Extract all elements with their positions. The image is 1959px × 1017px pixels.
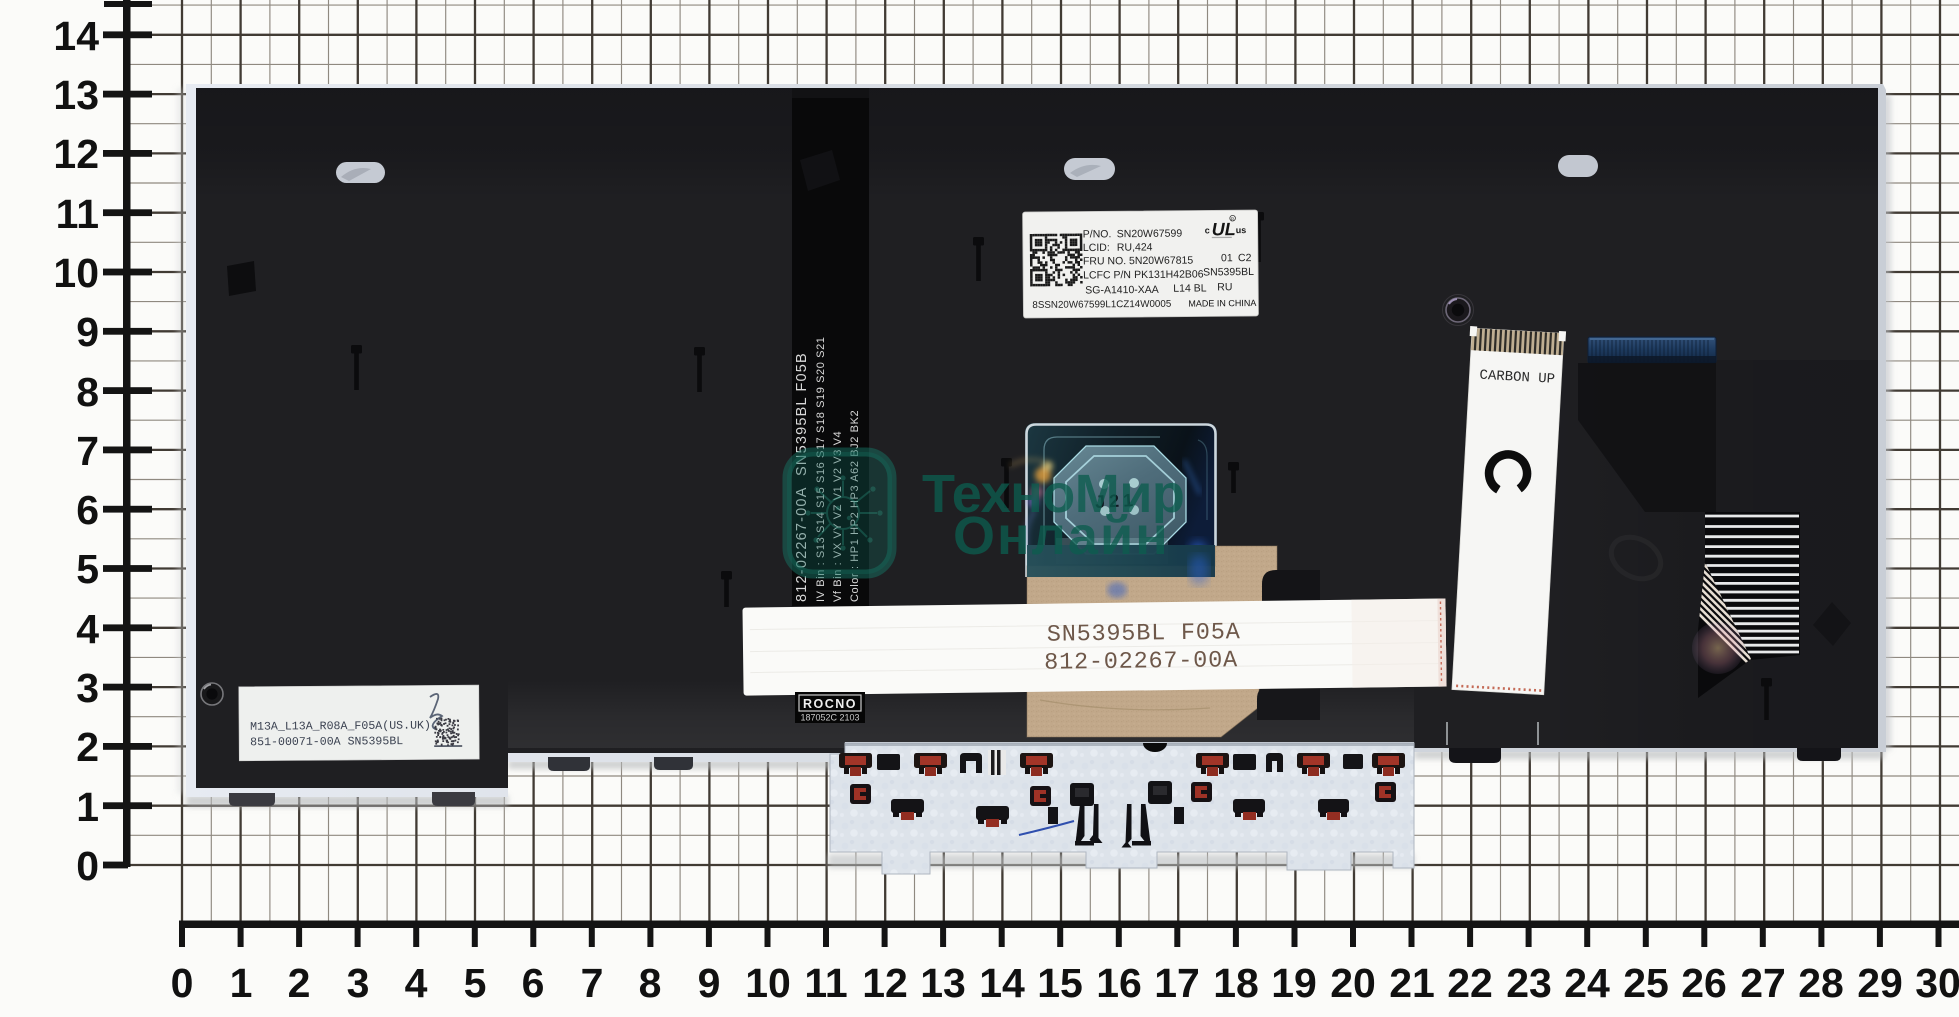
svg-text:23: 23 xyxy=(1506,960,1552,1006)
svg-text:20: 20 xyxy=(1330,960,1376,1006)
svg-text:6: 6 xyxy=(76,487,99,533)
svg-text:01: 01 xyxy=(1221,252,1233,264)
svg-text:FRU NO.: FRU NO. xyxy=(1083,255,1126,267)
svg-text:M13A_L13A_R08A_F05A(US.UK): M13A_L13A_R08A_F05A(US.UK) xyxy=(250,719,431,733)
svg-text:5: 5 xyxy=(464,960,487,1006)
svg-text:5N20W67815: 5N20W67815 xyxy=(1129,255,1193,268)
svg-text:c: c xyxy=(1205,225,1210,235)
svg-text:MADE IN CHINA: MADE IN CHINA xyxy=(1188,298,1256,309)
svg-text:3: 3 xyxy=(347,960,370,1006)
svg-text:8: 8 xyxy=(639,960,662,1006)
svg-text:4: 4 xyxy=(76,606,99,652)
svg-text:0: 0 xyxy=(171,960,194,1006)
svg-text:10: 10 xyxy=(745,960,791,1006)
svg-text:2: 2 xyxy=(76,724,99,770)
svg-text:L14 BL: L14 BL xyxy=(1173,282,1207,294)
svg-text:3: 3 xyxy=(76,665,99,711)
svg-text:10: 10 xyxy=(53,250,99,296)
svg-text:7: 7 xyxy=(581,960,604,1006)
svg-text:28: 28 xyxy=(1798,960,1844,1006)
svg-text:16: 16 xyxy=(1096,960,1142,1006)
svg-text:24: 24 xyxy=(1564,960,1610,1006)
svg-text:9: 9 xyxy=(76,309,99,355)
svg-text:30: 30 xyxy=(1915,960,1959,1006)
svg-text:11: 11 xyxy=(804,960,847,1006)
svg-text:ROCNO: ROCNO xyxy=(803,697,857,711)
svg-text:0: 0 xyxy=(76,843,99,889)
svg-text:9: 9 xyxy=(698,960,721,1006)
svg-text:21: 21 xyxy=(1389,960,1435,1006)
svg-text:6: 6 xyxy=(522,960,545,1006)
svg-text:12: 12 xyxy=(53,131,99,177)
svg-text:8: 8 xyxy=(76,369,99,415)
svg-text:27: 27 xyxy=(1740,960,1786,1006)
svg-text:PK131H42B06: PK131H42B06 xyxy=(1134,268,1204,281)
svg-text:SN5395BL F05A: SN5395BL F05A xyxy=(1047,619,1241,649)
svg-text:SN20W67599: SN20W67599 xyxy=(1117,228,1183,241)
svg-text:1: 1 xyxy=(76,784,99,830)
svg-text:11: 11 xyxy=(56,191,99,237)
svg-text:2: 2 xyxy=(288,960,311,1006)
svg-text:C2: C2 xyxy=(1238,252,1252,264)
svg-text:29: 29 xyxy=(1857,960,1903,1006)
svg-text:812-02267-00A: 812-02267-00A xyxy=(1044,647,1238,677)
svg-text:13: 13 xyxy=(920,960,966,1006)
svg-text:4: 4 xyxy=(405,960,428,1006)
svg-text:1: 1 xyxy=(230,960,253,1006)
svg-text:18: 18 xyxy=(1213,960,1259,1006)
svg-text:15: 15 xyxy=(1037,960,1083,1006)
svg-text:RU,424: RU,424 xyxy=(1117,241,1153,253)
svg-text:13: 13 xyxy=(53,72,99,118)
svg-text:7: 7 xyxy=(76,428,99,474)
svg-text:14: 14 xyxy=(53,13,99,59)
svg-text:851-00071-00A SN5395BL: 851-00071-00A SN5395BL xyxy=(250,735,403,749)
svg-text:RU: RU xyxy=(1217,281,1232,293)
svg-text:UL: UL xyxy=(1212,219,1236,239)
svg-text:us: us xyxy=(1236,225,1247,235)
svg-text:14: 14 xyxy=(979,960,1025,1006)
svg-text:8SSN20W67599L1CZ14W0005: 8SSN20W67599L1CZ14W0005 xyxy=(1032,299,1172,311)
svg-text:17: 17 xyxy=(1154,960,1200,1006)
svg-text:22: 22 xyxy=(1447,960,1493,1006)
svg-text:SN5395BL: SN5395BL xyxy=(1203,266,1254,278)
svg-text:LCFC P/N: LCFC P/N xyxy=(1083,269,1131,281)
svg-text:5: 5 xyxy=(76,546,99,592)
svg-text:26: 26 xyxy=(1681,960,1727,1006)
svg-text:25: 25 xyxy=(1623,960,1669,1006)
svg-text:P/NO.: P/NO. xyxy=(1083,228,1112,240)
svg-text:LCID:: LCID: xyxy=(1083,242,1110,254)
svg-text:19: 19 xyxy=(1271,960,1317,1006)
svg-text:187052C 2103: 187052C 2103 xyxy=(800,713,859,723)
svg-text:12: 12 xyxy=(862,960,908,1006)
svg-text:SG-A1410-XAA: SG-A1410-XAA xyxy=(1085,284,1159,297)
svg-text:Онлайн: Онлайн xyxy=(953,506,1170,566)
